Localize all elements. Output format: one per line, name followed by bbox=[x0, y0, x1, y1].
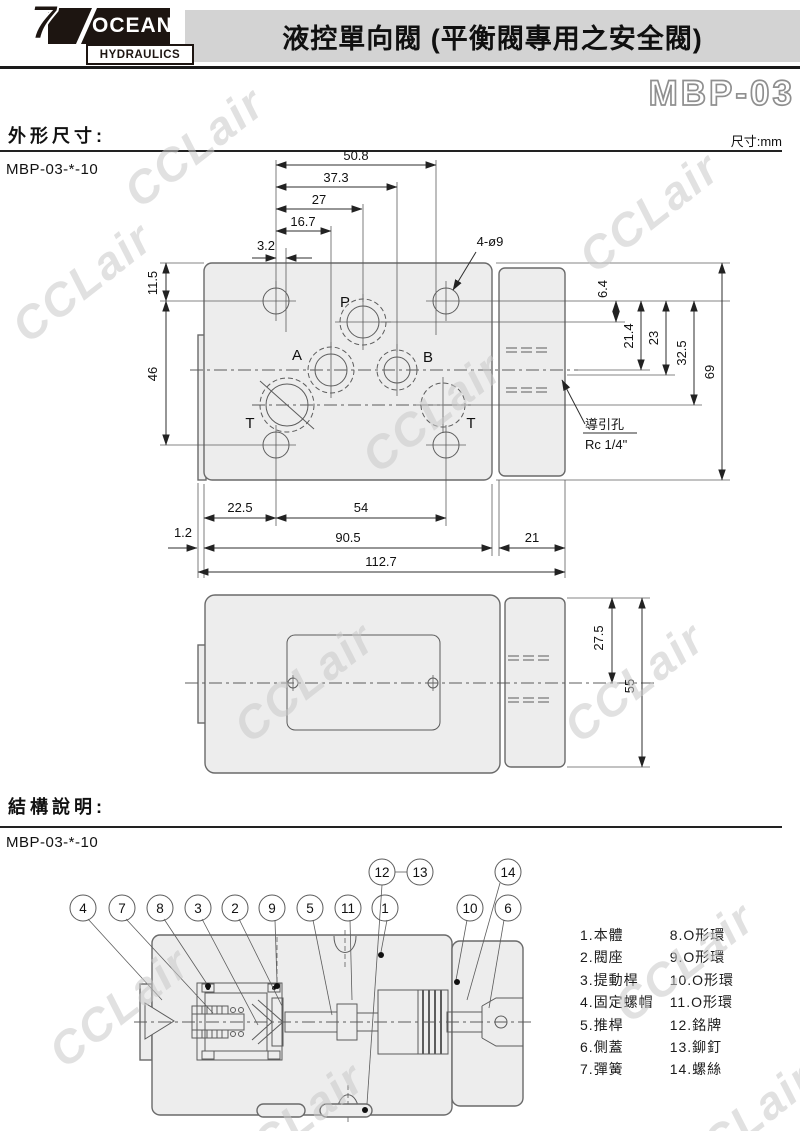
dim-11-5: 11.5 bbox=[145, 271, 160, 295]
logo-seven: 7 bbox=[30, 0, 57, 48]
holes-label: 4-ø9 bbox=[477, 234, 504, 249]
balloon-6: 6 bbox=[504, 901, 512, 916]
part-balloons: 12 13 14 4 7 8 3 2 9 5 11 1 10 6 bbox=[70, 859, 521, 921]
parts-column-2: 8.O形環 9.O形環 10.O形環 11.O形環 12.銘牌 13.鉚釘 14… bbox=[670, 924, 734, 1081]
title-bar: 液控單向閥 (平衡閥專用之安全閥) bbox=[185, 10, 800, 62]
dim-21-4: 21.4 bbox=[621, 323, 636, 348]
port-label-a: A bbox=[292, 347, 302, 364]
balloon-14: 14 bbox=[500, 865, 516, 880]
balloon-11: 11 bbox=[341, 901, 355, 916]
dim-23: 23 bbox=[646, 331, 661, 345]
balloon-1: 1 bbox=[381, 901, 389, 916]
dim-90-5: 90.5 bbox=[335, 530, 360, 545]
part-item: 12.銘牌 bbox=[670, 1014, 734, 1036]
part-item: 6.側蓋 bbox=[580, 1036, 654, 1058]
pilot-hole-thread: Rc 1/4" bbox=[585, 437, 628, 452]
port-label-b: B bbox=[423, 349, 433, 366]
dim-1-2: 1.2 bbox=[174, 525, 192, 540]
balloon-10: 10 bbox=[462, 901, 477, 916]
parts-column-1: 1.本體 2.閥座 3.提動桿 4.固定螺帽 5.推桿 6.側蓋 7.彈簧 bbox=[580, 924, 654, 1081]
section-end-cap bbox=[452, 941, 523, 1106]
logo-hydraulics-box: HYDRAULICS bbox=[86, 44, 194, 65]
nameplate-edge bbox=[257, 1104, 305, 1117]
structure-section-rule bbox=[0, 826, 782, 828]
port-label-t-left: T bbox=[245, 415, 254, 432]
page-title: 液控單向閥 (平衡閥專用之安全閥) bbox=[282, 17, 702, 56]
dim-27: 27 bbox=[312, 192, 326, 207]
part-item: 4.固定螺帽 bbox=[580, 991, 654, 1013]
end-cap-front bbox=[499, 268, 565, 476]
part-item: 3.提動桿 bbox=[580, 969, 654, 991]
brand-logo: 7 OCEAN HYDRAULICS bbox=[28, 8, 170, 66]
part-item: 11.O形環 bbox=[670, 991, 734, 1013]
valve-body-side bbox=[205, 595, 500, 773]
balloon-8: 8 bbox=[156, 901, 164, 916]
outline-section-heading: 外形尺寸: bbox=[8, 122, 106, 148]
part-item: 13.鉚釘 bbox=[670, 1036, 734, 1058]
dim-3-2: 3.2 bbox=[257, 238, 275, 253]
part-item: 9.O形環 bbox=[670, 946, 734, 968]
balloon-9: 9 bbox=[268, 901, 276, 916]
dim-112-7: 112.7 bbox=[365, 554, 397, 569]
part-item: 14.螺絲 bbox=[670, 1058, 734, 1080]
part-item: 2.閥座 bbox=[580, 946, 654, 968]
part-item: 8.O形環 bbox=[670, 924, 734, 946]
logo-ocean-text: OCEAN bbox=[92, 14, 173, 38]
port-label-p: P bbox=[340, 294, 350, 311]
parts-list: 1.本體 2.閥座 3.提動桿 4.固定螺帽 5.推桿 6.側蓋 7.彈簧 8.… bbox=[580, 924, 734, 1081]
dim-50-8: 50.8 bbox=[343, 148, 368, 163]
rivet bbox=[362, 1107, 368, 1113]
balloon-5: 5 bbox=[306, 901, 314, 916]
dim-6-4: 6.4 bbox=[595, 280, 610, 298]
balloon-2: 2 bbox=[231, 901, 239, 916]
model-number: MBP-03 bbox=[590, 74, 795, 114]
dim-32-5: 32.5 bbox=[674, 340, 689, 365]
part-item: 10.O形環 bbox=[670, 969, 734, 991]
header-rule bbox=[0, 66, 800, 69]
logo-hydraulics-text: HYDRAULICS bbox=[100, 49, 180, 61]
balloon-4: 4 bbox=[79, 901, 87, 916]
end-cap-side bbox=[505, 598, 565, 767]
dim-69: 69 bbox=[702, 365, 717, 379]
pilot-hole-label: 導引孔 bbox=[585, 417, 624, 432]
dim-27-5: 27.5 bbox=[591, 625, 606, 650]
dim-16-7: 16.7 bbox=[290, 214, 315, 229]
balloon-7: 7 bbox=[118, 901, 126, 916]
port-label-t-right: T bbox=[466, 415, 475, 432]
balloon-12: 12 bbox=[374, 865, 389, 880]
dim-21: 21 bbox=[525, 530, 539, 545]
catalog-page: CCLair CCLair CCLair CCLair CCLair CCLai… bbox=[0, 0, 800, 1131]
front-view-drawing: P A B T T 50.8 37.3 27 16.7 3.2 4-ø9 11.… bbox=[0, 148, 800, 578]
part-item: 1.本體 bbox=[580, 924, 654, 946]
balloon-3: 3 bbox=[194, 901, 202, 916]
dim-22-5: 22.5 bbox=[227, 500, 252, 515]
dim-46: 46 bbox=[145, 367, 160, 381]
dim-55: 55 bbox=[622, 679, 637, 693]
dim-37-3: 37.3 bbox=[323, 170, 348, 185]
part-item: 7.彈簧 bbox=[580, 1058, 654, 1080]
part-item: 5.推桿 bbox=[580, 1014, 654, 1036]
dim-54: 54 bbox=[354, 500, 368, 515]
structure-section-heading: 結構說明: bbox=[8, 793, 106, 819]
balloon-13: 13 bbox=[412, 865, 427, 880]
side-view-drawing: 27.5 55 bbox=[0, 575, 800, 790]
